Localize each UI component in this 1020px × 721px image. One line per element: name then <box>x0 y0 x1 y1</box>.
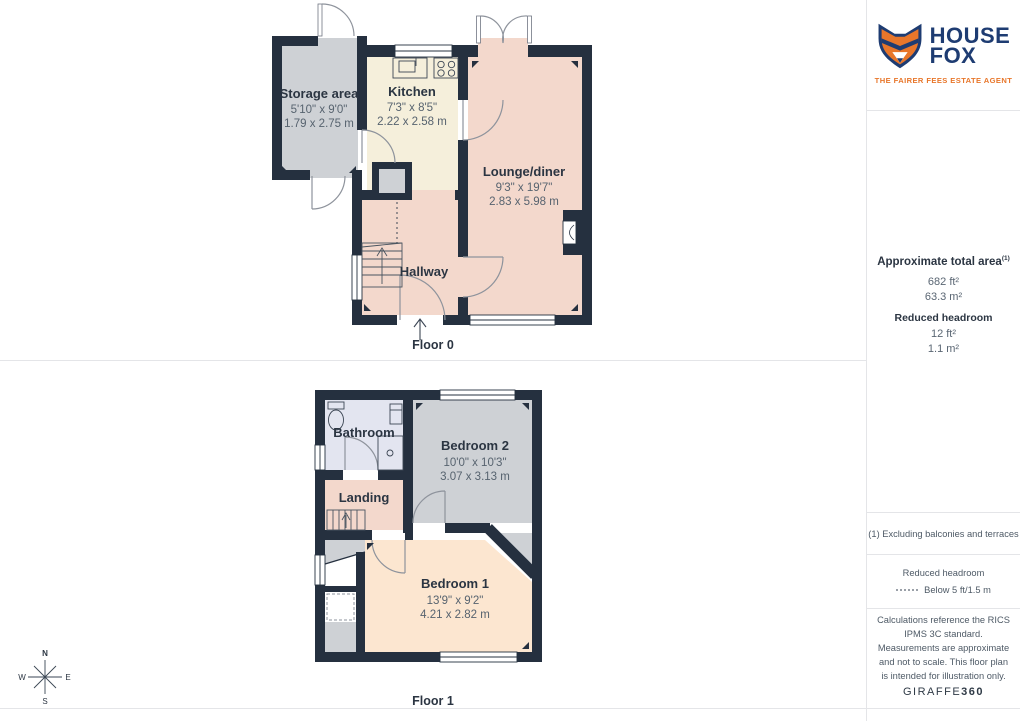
housefox-logo: HOUSE FOX THE FAIRER FEES ESTATE AGENT <box>867 22 1020 85</box>
floor0-cupboard <box>379 169 405 193</box>
floor1-label: Floor 1 <box>0 694 866 708</box>
bedroom2-room-dim-imperial: 10'0" x 10'3" <box>443 457 506 469</box>
compass-east-label: E <box>65 673 70 682</box>
reduced-headroom-title: Reduced headroom <box>867 312 1020 324</box>
sidebar-divider <box>867 608 1020 609</box>
bedroom1-room-dim-imperial: 13'9" x 9'2" <box>427 595 484 607</box>
compass-south-label: S <box>42 697 47 706</box>
page-bottom-line <box>0 708 1020 709</box>
bathroom-room-name: Bathroom <box>333 425 394 440</box>
compass-west-label: W <box>18 673 26 682</box>
bedroom1-room-dim-metric: 4.21 x 2.82 m <box>420 609 490 621</box>
bedroom2-room-dim-metric: 3.07 x 3.13 m <box>440 471 510 483</box>
lounge-room-name: Lounge/diner <box>483 164 565 179</box>
area-footnote: (1) Excluding balconies and terraces <box>867 529 1020 539</box>
floor0-plan: Storage area 5'10" x 9'0" 1.79 x 2.75 m … <box>260 0 600 355</box>
bedroom1-room-name: Bedroom 1 <box>421 576 489 591</box>
floor0-label: Floor 0 <box>0 338 866 352</box>
total-area-metric: 63.3 m² <box>867 291 1020 303</box>
legend-title: Reduced headroom <box>867 568 1020 578</box>
kitchen-room-name: Kitchen <box>388 84 436 99</box>
floorplan-main-area: Storage area 5'10" x 9'0" 1.79 x 2.75 m … <box>0 0 866 721</box>
lounge-room-dim-metric: 2.83 x 5.98 m <box>489 196 559 208</box>
storage-room-dim-metric: 1.79 x 2.75 m <box>284 118 354 130</box>
storage-room-dim-imperial: 5'10" x 9'0" <box>291 104 348 116</box>
sidebar-divider <box>867 110 1020 111</box>
kitchen-room-dim-imperial: 7'3" x 8'5" <box>387 102 437 114</box>
bedroom2-room-name: Bedroom 2 <box>441 438 509 453</box>
floor1-plan: Bathroom Bedroom 2 10'0" x 10'3" 3.07 x … <box>300 380 570 680</box>
compass-rose: N E S W <box>14 646 76 708</box>
floor-divider-line <box>0 360 866 361</box>
logo-word-fox: FOX <box>930 46 1011 66</box>
legend-value: Below 5 ft/1.5 m <box>924 585 991 595</box>
reduced-headroom-area <box>327 594 354 620</box>
sidebar-divider-vertical <box>866 0 867 721</box>
compass-north-label: N <box>42 649 48 658</box>
lounge-room-dim-imperial: 9'3" x 19'7" <box>496 182 553 194</box>
entrance-arrow <box>414 319 426 340</box>
landing-room-name: Landing <box>339 490 390 505</box>
giraffe360-brand: GIRAFFE360 <box>867 686 1020 698</box>
sidebar-divider <box>867 554 1020 555</box>
hallway-room-name: Hallway <box>400 264 449 279</box>
floorplan-page: Storage area 5'10" x 9'0" 1.79 x 2.75 m … <box>0 0 1020 721</box>
legend-row: Below 5 ft/1.5 m <box>867 585 1020 595</box>
sidebar-divider <box>867 512 1020 513</box>
reduced-headroom-dotted-swatch <box>896 589 918 591</box>
total-area-title: Approximate total area(1) <box>867 255 1020 268</box>
reduced-headroom-imperial: 12 ft² <box>867 328 1020 340</box>
total-area-title-text: Approximate total area <box>877 256 1002 268</box>
logo-tagline: THE FAIRER FEES ESTATE AGENT <box>867 76 1020 85</box>
reduced-headroom-metric: 1.1 m² <box>867 343 1020 355</box>
sidebar: HOUSE FOX THE FAIRER FEES ESTATE AGENT A… <box>867 0 1020 721</box>
kitchen-room-dim-metric: 2.22 x 2.58 m <box>377 116 447 128</box>
fox-icon <box>877 22 923 70</box>
giraffe360-brand-bold: 360 <box>961 686 984 698</box>
disclaimer-text: Calculations reference the RICS IPMS 3C … <box>875 614 1012 684</box>
total-area-imperial: 682 ft² <box>867 276 1020 288</box>
total-area-footnote-marker: (1) <box>1002 255 1010 262</box>
giraffe360-brand-regular: GIRAFFE <box>903 686 961 698</box>
storage-room-name: Storage area <box>280 86 360 101</box>
